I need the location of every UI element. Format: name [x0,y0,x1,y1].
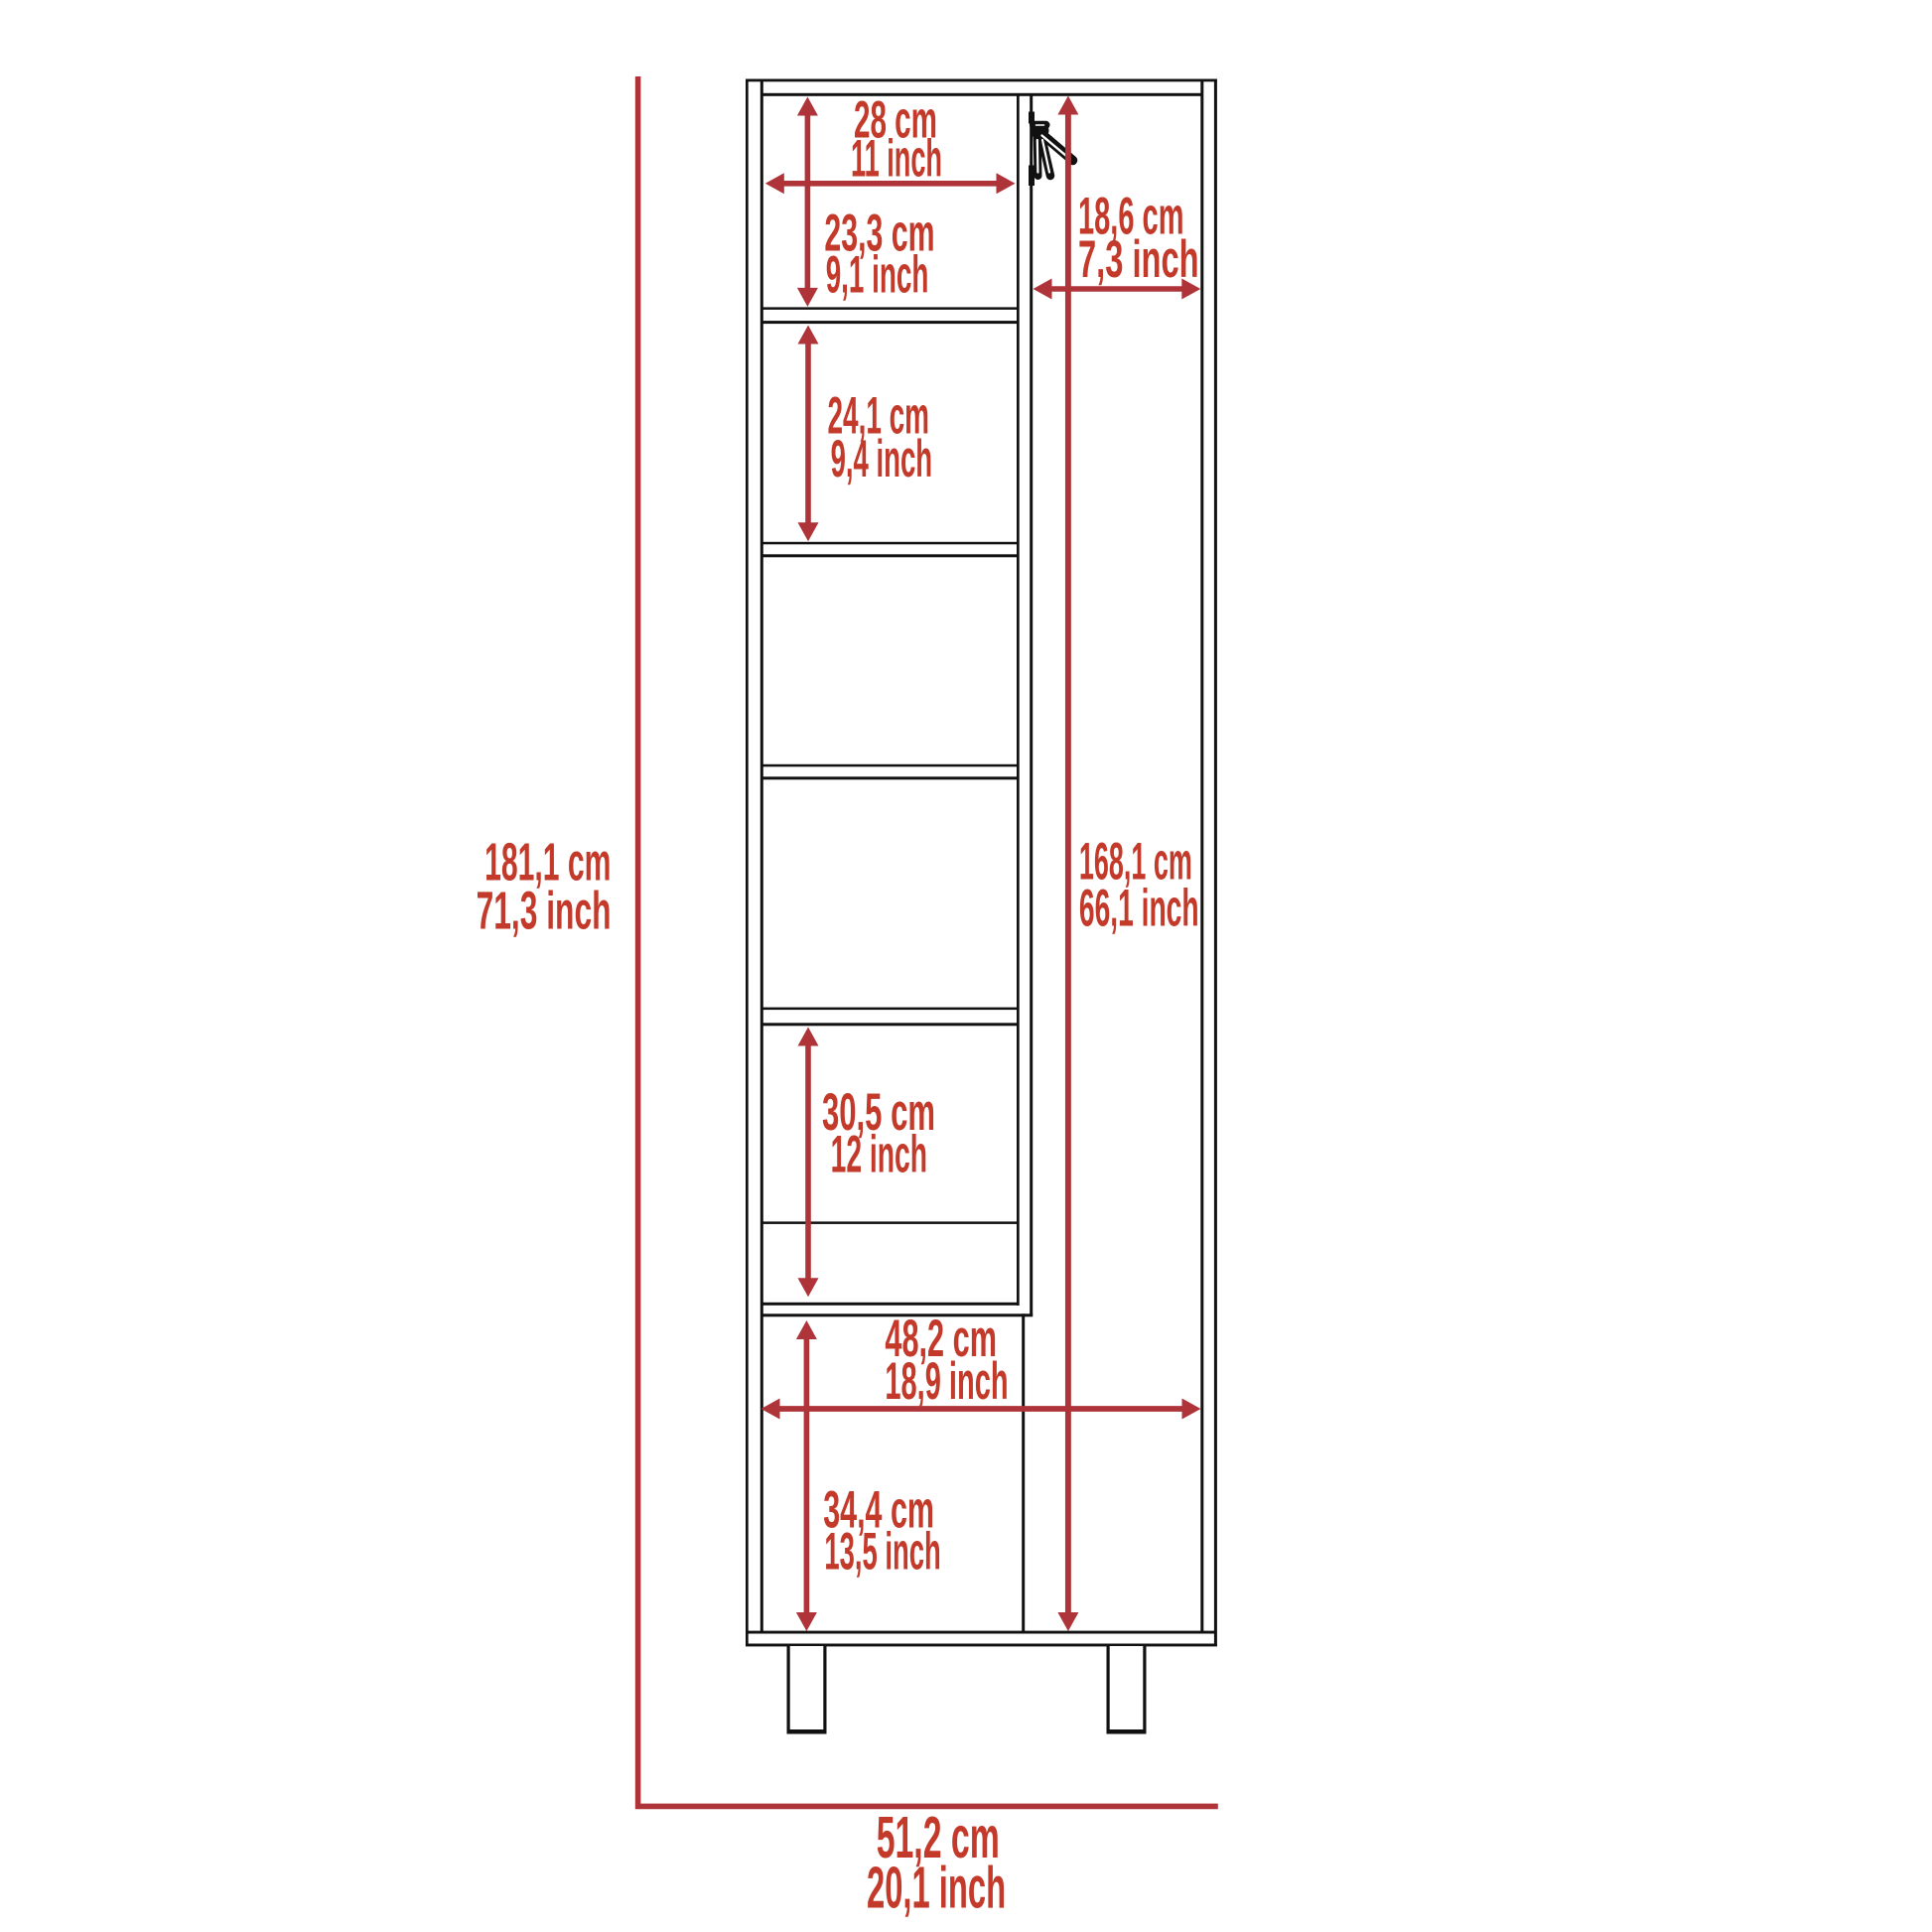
svg-text:12 inch: 12 inch [831,1126,927,1184]
svg-text:7,3 inch: 7,3 inch [1078,230,1199,289]
svg-text:13,5 inch: 13,5 inch [824,1523,940,1582]
svg-text:9,4 inch: 9,4 inch [831,430,933,488]
svg-text:20,1 inch: 20,1 inch [867,1855,1006,1920]
svg-text:71,3 inch: 71,3 inch [477,882,612,941]
svg-text:66,1 inch: 66,1 inch [1079,880,1199,938]
svg-text:9,1 inch: 9,1 inch [826,245,929,304]
svg-text:11 inch: 11 inch [851,130,942,189]
svg-text:18,9 inch: 18,9 inch [885,1352,1008,1411]
